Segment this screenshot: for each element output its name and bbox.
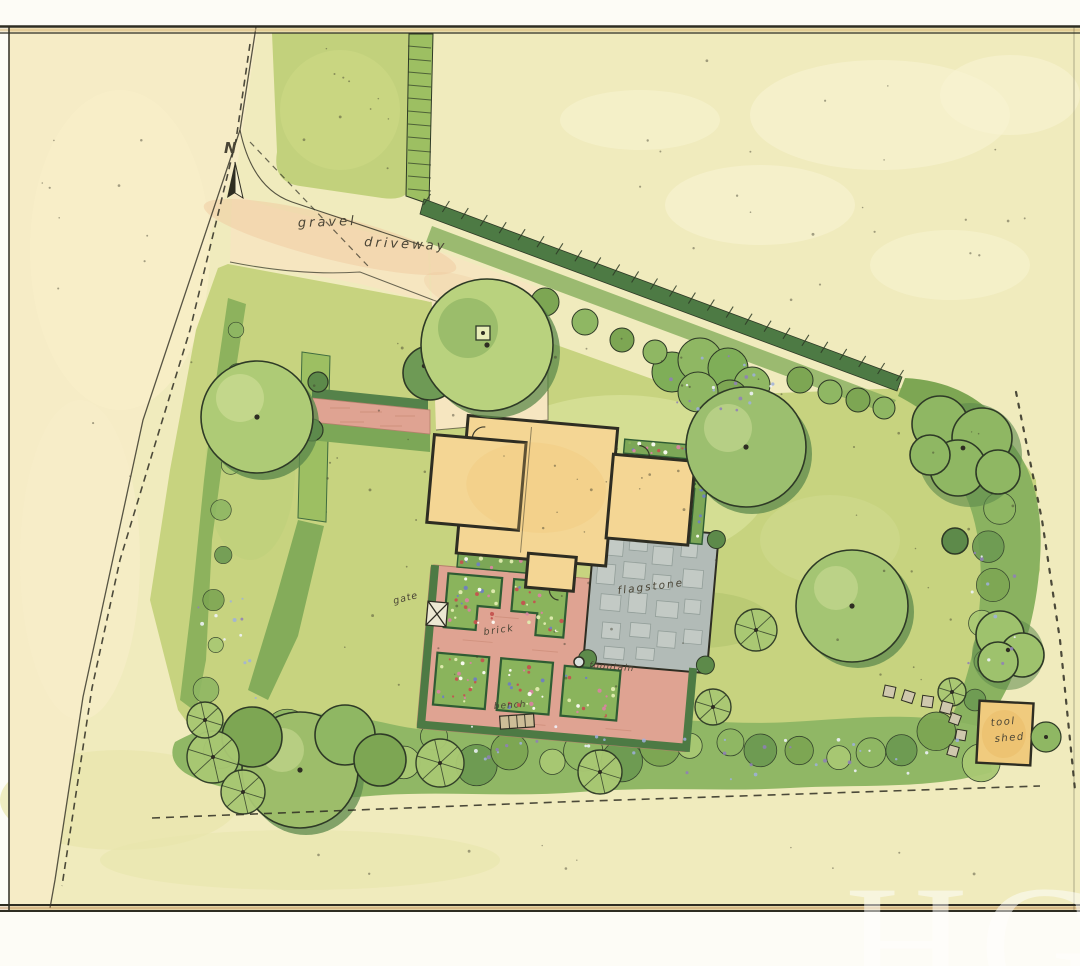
texture bbox=[685, 771, 688, 774]
texture bbox=[197, 606, 199, 608]
texture bbox=[883, 159, 885, 161]
texture bbox=[784, 739, 787, 742]
texture bbox=[118, 184, 121, 187]
texture bbox=[542, 845, 543, 846]
texture bbox=[976, 568, 1009, 601]
texture bbox=[752, 373, 755, 376]
texture bbox=[837, 738, 841, 742]
texture bbox=[790, 847, 791, 848]
texture bbox=[407, 439, 408, 440]
texture bbox=[971, 591, 974, 594]
texture bbox=[987, 658, 990, 661]
texture bbox=[883, 570, 886, 573]
texture bbox=[1011, 504, 1014, 507]
texture bbox=[241, 790, 245, 794]
texture bbox=[730, 778, 732, 780]
texture bbox=[397, 343, 399, 345]
texture bbox=[965, 219, 967, 221]
texture bbox=[897, 432, 900, 435]
texture bbox=[683, 508, 686, 511]
texture bbox=[641, 477, 643, 479]
texture bbox=[211, 500, 232, 521]
texture bbox=[734, 382, 737, 385]
texture bbox=[215, 546, 232, 563]
texture bbox=[754, 628, 758, 632]
texture bbox=[686, 384, 688, 386]
texture bbox=[329, 462, 331, 464]
texture bbox=[190, 361, 192, 363]
texture bbox=[1024, 217, 1026, 219]
texture bbox=[437, 647, 439, 649]
texture bbox=[969, 252, 971, 254]
texture bbox=[233, 618, 237, 622]
texture bbox=[58, 217, 60, 219]
fountain-icon bbox=[574, 657, 584, 667]
texture bbox=[819, 284, 821, 286]
texture bbox=[57, 287, 59, 289]
texture bbox=[932, 451, 934, 453]
texture bbox=[214, 614, 217, 617]
texture bbox=[540, 749, 565, 774]
texture bbox=[554, 465, 556, 467]
texture bbox=[639, 488, 641, 490]
texture bbox=[925, 751, 928, 754]
texture bbox=[146, 235, 148, 237]
texture bbox=[53, 140, 55, 142]
watermark: HG bbox=[845, 851, 1080, 966]
texture bbox=[669, 377, 673, 381]
texture bbox=[728, 355, 730, 357]
texture bbox=[682, 642, 684, 644]
texture bbox=[484, 757, 487, 760]
texture bbox=[584, 531, 586, 533]
texture bbox=[370, 108, 372, 110]
texture bbox=[856, 738, 886, 768]
texture bbox=[790, 299, 793, 302]
texture bbox=[928, 587, 930, 589]
texture bbox=[455, 605, 458, 608]
texture bbox=[1010, 647, 1013, 650]
texture bbox=[749, 151, 751, 153]
texture bbox=[823, 759, 827, 763]
texture bbox=[342, 77, 344, 79]
texture bbox=[317, 854, 320, 857]
texture bbox=[387, 167, 389, 169]
texture bbox=[879, 673, 881, 675]
texture bbox=[496, 748, 499, 751]
north-label: N bbox=[224, 139, 237, 157]
texture bbox=[723, 751, 726, 754]
texture bbox=[771, 382, 774, 385]
texture bbox=[642, 739, 646, 743]
texture bbox=[688, 400, 690, 402]
texture bbox=[1007, 220, 1010, 223]
texture bbox=[348, 80, 350, 82]
texture bbox=[950, 618, 952, 620]
texture bbox=[836, 638, 839, 641]
texture bbox=[1014, 636, 1016, 638]
texture bbox=[692, 247, 694, 249]
texture bbox=[406, 566, 408, 568]
texture bbox=[563, 643, 565, 645]
texture bbox=[344, 646, 346, 648]
texture bbox=[610, 628, 613, 631]
texture bbox=[717, 729, 744, 756]
texture bbox=[200, 622, 204, 626]
texture bbox=[49, 187, 51, 189]
texture bbox=[535, 740, 538, 743]
texture bbox=[561, 595, 563, 597]
texture bbox=[92, 422, 94, 424]
texture bbox=[758, 378, 760, 380]
texture bbox=[454, 674, 455, 675]
texture bbox=[724, 739, 726, 741]
texture bbox=[750, 211, 752, 213]
texture bbox=[711, 705, 715, 709]
texture bbox=[719, 407, 722, 410]
texture bbox=[587, 582, 590, 585]
texture bbox=[240, 618, 243, 621]
label-tool-shed-1: tool bbox=[990, 716, 1016, 729]
texture bbox=[785, 736, 813, 764]
texture bbox=[862, 207, 864, 209]
texture bbox=[696, 407, 700, 411]
texture bbox=[228, 322, 244, 338]
texture bbox=[913, 666, 915, 668]
texture bbox=[590, 488, 593, 491]
texture bbox=[565, 867, 568, 870]
texture bbox=[474, 749, 478, 753]
texture bbox=[556, 512, 558, 514]
texture bbox=[438, 761, 442, 765]
texture bbox=[680, 357, 682, 359]
texture bbox=[230, 600, 232, 602]
gate-icon bbox=[426, 601, 448, 627]
texture bbox=[895, 758, 897, 760]
texture bbox=[519, 742, 522, 745]
texture bbox=[967, 528, 970, 531]
texture bbox=[763, 745, 767, 749]
texture bbox=[978, 433, 980, 435]
label-gravel: gravel bbox=[298, 214, 357, 231]
texture bbox=[712, 386, 715, 389]
texture bbox=[683, 738, 686, 741]
texture bbox=[974, 552, 976, 554]
texture bbox=[681, 384, 683, 386]
texture bbox=[750, 392, 754, 396]
texture bbox=[955, 738, 959, 742]
texture bbox=[208, 637, 223, 652]
texture bbox=[715, 559, 717, 561]
texture bbox=[388, 118, 390, 120]
texture bbox=[981, 555, 983, 557]
texture bbox=[203, 718, 207, 722]
texture bbox=[743, 364, 746, 367]
texture bbox=[371, 614, 374, 617]
texture bbox=[632, 751, 635, 754]
texture bbox=[468, 850, 471, 853]
texture bbox=[424, 470, 427, 473]
texture bbox=[584, 745, 587, 748]
texture bbox=[973, 531, 1005, 563]
texture bbox=[211, 755, 215, 759]
texture bbox=[986, 582, 989, 585]
texture bbox=[868, 750, 870, 752]
texture bbox=[587, 744, 590, 747]
texture bbox=[647, 139, 649, 141]
texture bbox=[333, 73, 335, 75]
texture bbox=[713, 389, 716, 392]
texture bbox=[129, 475, 131, 477]
texture bbox=[378, 98, 380, 100]
texture bbox=[907, 772, 910, 775]
texture bbox=[659, 151, 661, 153]
texture bbox=[812, 233, 815, 236]
texture bbox=[915, 548, 917, 550]
texture bbox=[576, 859, 577, 860]
texture bbox=[368, 873, 370, 875]
texture bbox=[856, 514, 857, 515]
texture bbox=[193, 677, 219, 703]
texture bbox=[736, 409, 739, 412]
texture bbox=[326, 48, 328, 50]
texture bbox=[736, 195, 738, 197]
texture bbox=[505, 744, 508, 747]
texture bbox=[852, 743, 855, 746]
texture bbox=[497, 751, 499, 753]
site-plan: N gravel driveway gate brick flagstone f… bbox=[0, 0, 1080, 966]
texture bbox=[971, 431, 972, 432]
texture bbox=[886, 735, 917, 766]
texture bbox=[887, 85, 889, 87]
texture bbox=[754, 773, 758, 777]
texture bbox=[42, 182, 44, 184]
texture bbox=[554, 356, 557, 359]
texture bbox=[586, 348, 588, 350]
texture bbox=[824, 100, 826, 102]
texture bbox=[401, 347, 404, 350]
texture bbox=[744, 734, 777, 767]
texture bbox=[750, 763, 753, 766]
texture bbox=[854, 769, 857, 772]
texture bbox=[676, 401, 678, 403]
texture bbox=[993, 615, 997, 619]
texture bbox=[1013, 574, 1017, 578]
texture bbox=[815, 763, 818, 766]
texture bbox=[853, 446, 855, 448]
texture bbox=[621, 338, 623, 340]
texture bbox=[874, 231, 876, 233]
texture bbox=[398, 684, 400, 686]
texture bbox=[648, 473, 651, 476]
texture bbox=[832, 867, 834, 869]
texture bbox=[701, 357, 704, 360]
texture bbox=[789, 746, 791, 748]
texture bbox=[239, 634, 242, 637]
texture bbox=[452, 414, 455, 417]
texture bbox=[738, 397, 742, 401]
texture bbox=[967, 662, 969, 664]
texture bbox=[223, 638, 226, 641]
texture bbox=[603, 738, 606, 741]
garden-plan-page: N gravel driveway gate brick flagstone f… bbox=[0, 0, 1080, 966]
texture bbox=[491, 733, 528, 770]
texture bbox=[144, 260, 146, 262]
bench-icon bbox=[500, 714, 535, 729]
texture bbox=[326, 477, 328, 479]
texture bbox=[744, 375, 748, 379]
texture bbox=[595, 735, 598, 738]
texture bbox=[598, 770, 602, 774]
texture bbox=[616, 448, 618, 450]
texture bbox=[303, 138, 306, 141]
texture bbox=[336, 457, 338, 459]
texture bbox=[203, 589, 224, 610]
texture bbox=[564, 677, 567, 680]
texture bbox=[769, 385, 772, 388]
texture bbox=[243, 661, 246, 664]
texture bbox=[471, 726, 473, 728]
texture bbox=[554, 725, 557, 728]
texture bbox=[706, 59, 709, 62]
texture bbox=[859, 750, 861, 752]
texture bbox=[748, 401, 751, 404]
texture bbox=[415, 519, 417, 521]
texture bbox=[1001, 662, 1004, 665]
texture bbox=[980, 557, 984, 561]
texture bbox=[994, 149, 996, 151]
texture bbox=[827, 746, 851, 770]
texture bbox=[606, 481, 608, 483]
texture bbox=[848, 760, 852, 764]
texture bbox=[950, 690, 954, 694]
texture bbox=[639, 186, 641, 188]
texture bbox=[313, 384, 316, 387]
texture bbox=[542, 527, 544, 529]
texture bbox=[920, 679, 921, 680]
texture bbox=[978, 254, 980, 256]
texture bbox=[661, 360, 663, 362]
estate bbox=[409, 413, 734, 754]
texture bbox=[339, 115, 342, 118]
texture bbox=[781, 393, 783, 395]
texture bbox=[378, 410, 380, 412]
texture bbox=[241, 598, 243, 600]
texture bbox=[677, 470, 680, 473]
texture bbox=[577, 479, 578, 480]
texture bbox=[689, 386, 691, 388]
texture bbox=[615, 685, 617, 687]
texture bbox=[476, 656, 478, 658]
texture bbox=[369, 488, 372, 491]
texture bbox=[487, 755, 491, 759]
texture bbox=[553, 631, 555, 633]
texture bbox=[255, 697, 257, 699]
texture bbox=[503, 455, 505, 457]
texture bbox=[911, 570, 913, 572]
texture bbox=[140, 139, 143, 142]
texture bbox=[248, 659, 251, 662]
